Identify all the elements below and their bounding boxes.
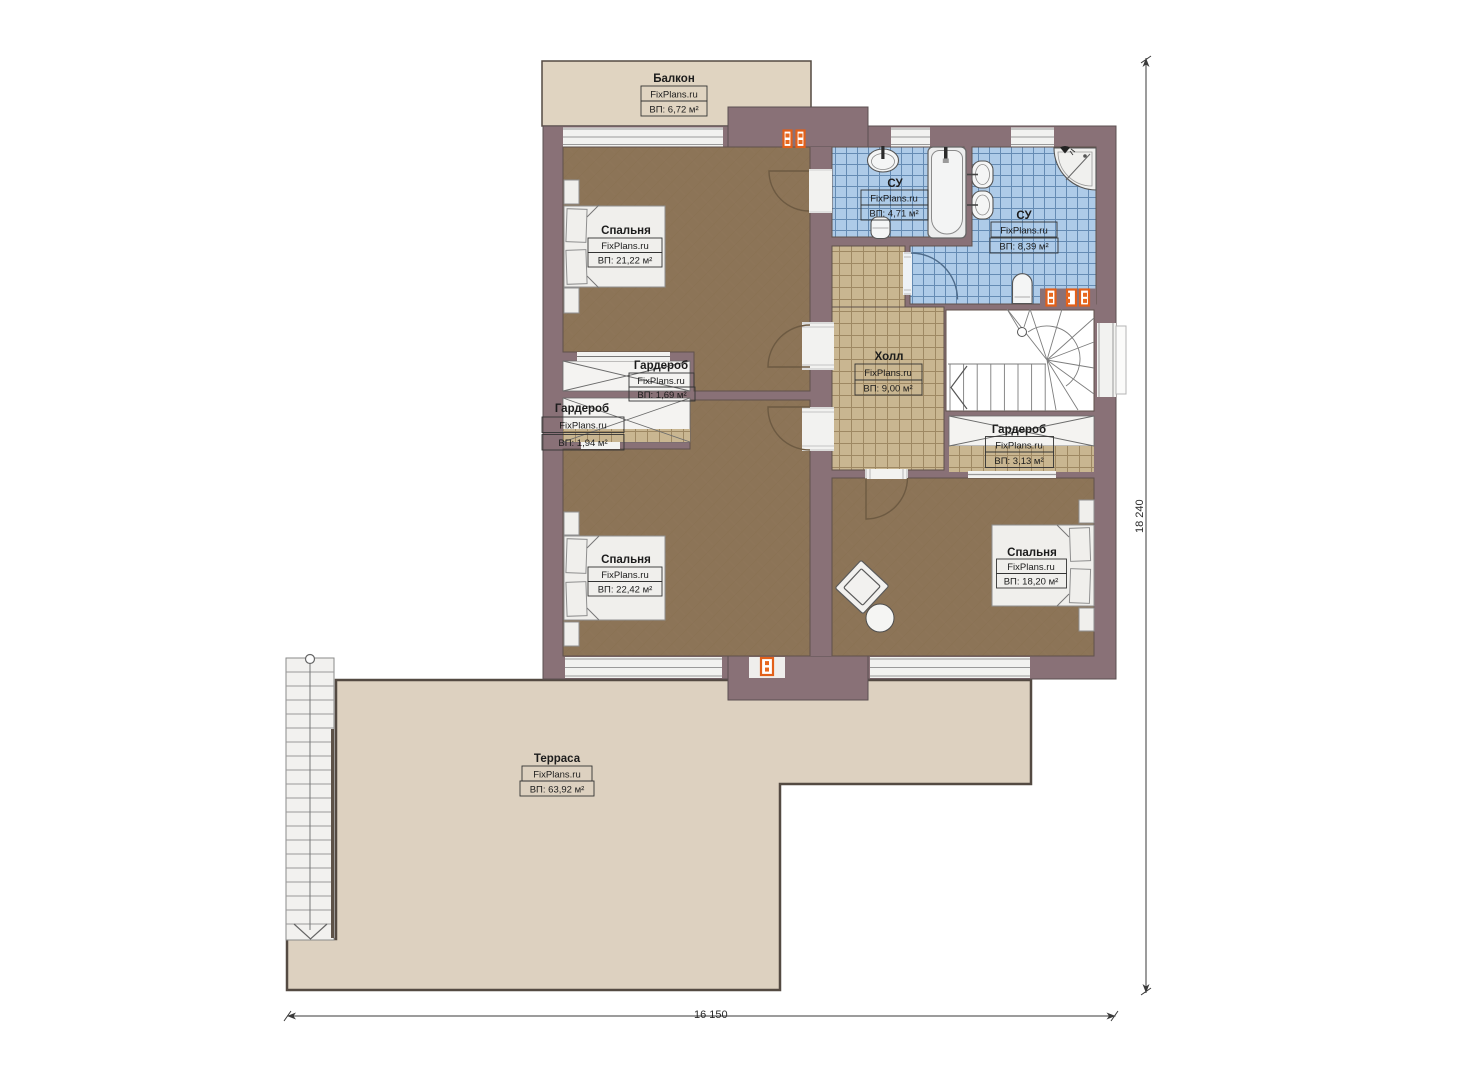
svg-text:FixPlans.ru: FixPlans.ru — [601, 570, 649, 581]
svg-text:Холл: Холл — [875, 351, 904, 363]
svg-text:ВП: 3,13 м²: ВП: 3,13 м² — [994, 456, 1043, 467]
svg-text:СУ: СУ — [887, 178, 903, 190]
svg-text:ВП: 21,22 м²: ВП: 21,22 м² — [598, 256, 653, 267]
svg-text:Гардероб: Гардероб — [992, 424, 1046, 436]
svg-text:ВП: 6,72 м²: ВП: 6,72 м² — [649, 105, 698, 116]
svg-text:ВП: 63,92 м²: ВП: 63,92 м² — [530, 785, 585, 796]
svg-text:18 240: 18 240 — [1134, 499, 1146, 533]
svg-text:FixPlans.ru: FixPlans.ru — [559, 421, 607, 432]
svg-text:ВП: 8,39 м²: ВП: 8,39 м² — [999, 242, 1048, 253]
svg-text:FixPlans.ru: FixPlans.ru — [870, 194, 918, 205]
svg-text:FixPlans.ru: FixPlans.ru — [533, 770, 581, 781]
svg-text:Спальня: Спальня — [1007, 547, 1057, 559]
svg-text:Спальня: Спальня — [601, 225, 651, 237]
svg-text:FixPlans.ru: FixPlans.ru — [1007, 562, 1055, 573]
svg-text:Балкон: Балкон — [653, 73, 695, 85]
svg-text:FixPlans.ru: FixPlans.ru — [1000, 226, 1048, 237]
svg-text:ВП: 22,42 м²: ВП: 22,42 м² — [598, 585, 653, 596]
svg-text:Гардероб: Гардероб — [555, 403, 609, 415]
svg-text:FixPlans.ru: FixPlans.ru — [601, 241, 649, 252]
svg-text:FixPlans.ru: FixPlans.ru — [995, 441, 1043, 452]
svg-text:FixPlans.ru: FixPlans.ru — [864, 368, 912, 379]
svg-text:Гардероб: Гардероб — [634, 360, 688, 372]
svg-text:Терраса: Терраса — [534, 753, 581, 765]
svg-text:СУ: СУ — [1016, 210, 1032, 222]
svg-text:Спальня: Спальня — [601, 554, 651, 566]
svg-text:16 150: 16 150 — [694, 1009, 728, 1021]
svg-text:ВП: 9,00 м²: ВП: 9,00 м² — [863, 384, 912, 395]
svg-text:FixPlans.ru: FixPlans.ru — [650, 90, 698, 101]
svg-text:ВП: 1,94 м²: ВП: 1,94 м² — [558, 438, 607, 449]
svg-text:FixPlans.ru: FixPlans.ru — [637, 376, 685, 387]
svg-text:ВП: 4,71 м²: ВП: 4,71 м² — [869, 209, 918, 220]
svg-text:ВП: 1,69 м²: ВП: 1,69 м² — [637, 390, 686, 401]
svg-text:ВП: 18,20 м²: ВП: 18,20 м² — [1004, 577, 1059, 588]
